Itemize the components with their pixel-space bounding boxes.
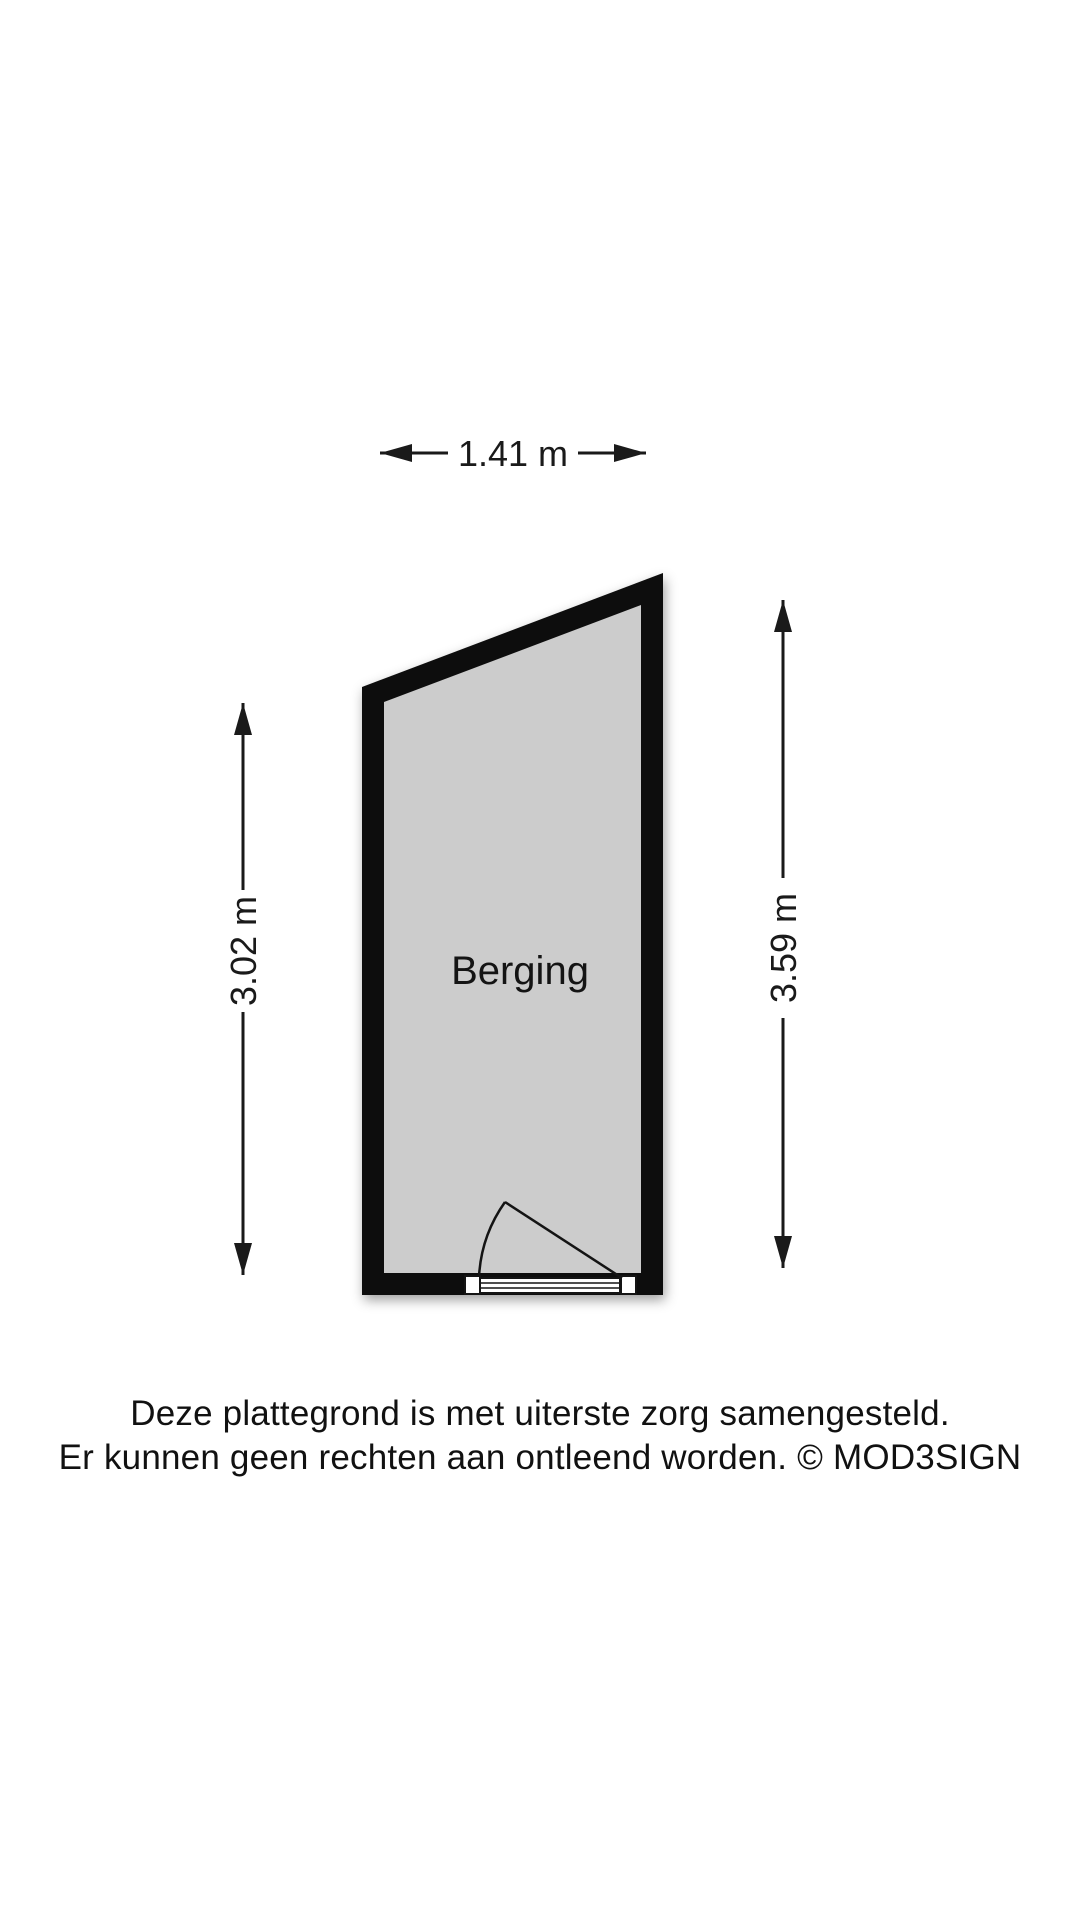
- arrow-up-icon: [774, 600, 792, 632]
- arrow-right-icon: [614, 444, 646, 462]
- arrow-left-icon: [380, 444, 412, 462]
- room-floor: [384, 605, 641, 1273]
- door-jamb-left: [465, 1276, 480, 1294]
- floorplan-drawing: 1.41 m Berging 3.02 m: [0, 0, 1080, 1520]
- dimension-right: 3.59 m: [763, 600, 804, 1268]
- room-label: Berging: [451, 949, 589, 993]
- arrow-down-icon: [234, 1243, 252, 1275]
- floorplan-page: 1.41 m Berging 3.02 m: [0, 0, 1080, 1920]
- door-jamb-right: [621, 1276, 636, 1294]
- arrow-up-icon: [234, 703, 252, 735]
- dimension-left-label: 3.02 m: [223, 896, 264, 1006]
- dimension-left: 3.02 m: [223, 703, 264, 1275]
- dimension-right-label: 3.59 m: [763, 893, 804, 1003]
- disclaimer: Deze plattegrond is met uiterste zorg sa…: [0, 1392, 1080, 1480]
- door-threshold: [480, 1278, 620, 1293]
- disclaimer-line2: Er kunnen geen rechten aan ontleend word…: [0, 1436, 1080, 1480]
- room-berging: Berging: [362, 573, 663, 1295]
- disclaimer-line1: Deze plattegrond is met uiterste zorg sa…: [0, 1392, 1080, 1436]
- dimension-top: 1.41 m: [380, 433, 646, 474]
- arrow-down-icon: [774, 1236, 792, 1268]
- dimension-top-label: 1.41 m: [458, 433, 568, 474]
